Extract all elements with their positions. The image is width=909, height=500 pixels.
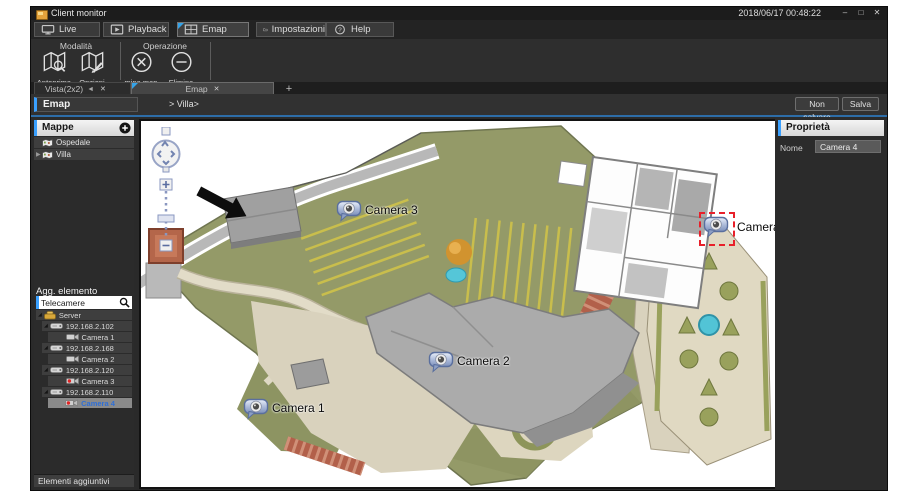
map-camera-4[interactable] [703,216,729,238]
emap-panel-title: Emap [34,97,138,112]
search-box [36,296,132,309]
maximize-button[interactable]: □ [853,7,869,19]
expander-icon[interactable]: ◢ [44,367,48,373]
tab-impostazioni[interactable]: Impostazioni [256,22,326,37]
properties-panel: Proprietà Nome Camera 4 [775,117,887,490]
map-item-ospedale[interactable]: Ospedale [34,137,134,148]
clock: 2018/06/17 00:48:22 [738,8,821,18]
map-camera-3[interactable] [336,200,362,222]
group-title: Modalità [34,39,118,51]
tab-label: Playback [128,24,167,35]
close-icon[interactable]: ✕ [214,85,220,93]
window-title: Client monitor [51,8,107,18]
map-camera-3-label: Camera 3 [365,203,418,217]
map-camera-1[interactable] [243,398,269,420]
maps-header-label: Mappe [42,122,74,133]
map-camera-2-label: Camera 2 [457,354,510,368]
maps-header: Mappe [34,120,134,136]
sidebar: Mappe Ospedale ▶ Villa Agg. elemento ◢ S… [34,117,134,490]
device-icon [50,389,63,395]
map-camera-4-label: Camera 4 [737,220,777,234]
tree-item-server[interactable]: ◢ Server [36,310,132,320]
tab-playback[interactable]: Playback [103,22,169,37]
search-input[interactable] [41,296,119,309]
tree-item-device[interactable]: ◢ 192.168.2.168 [42,343,132,353]
subtab-label: Emap [185,84,207,94]
tree-label: 192.168.2.102 [66,322,114,331]
tree-label: 192.168.2.168 [66,344,114,353]
tab-help[interactable]: Help [326,22,394,37]
close-button[interactable]: ✕ [869,7,885,19]
breadcrumb: > Villa> [169,99,199,109]
minimize-button[interactable]: – [837,7,853,19]
playback-icon [110,24,124,35]
tab-label: Impostazioni [272,24,325,35]
main-tab-bar: Live Playback Emap Impostazioni Help [31,20,887,39]
close-icon[interactable]: ✕ [100,85,106,93]
app-window: Client monitor 2018/06/17 00:48:22 – □ ✕… [30,6,888,491]
properties-header: Proprietà [778,120,884,136]
emap-header: Emap > Villa> Non salvare Salva [31,94,887,117]
tab-label: Live [59,24,76,35]
app-icon [36,10,48,20]
tree-label: Camera 1 [82,333,115,342]
help-icon [333,24,347,35]
tab-label: Emap [202,24,227,35]
name-label: Nome [780,143,803,153]
map-preview-icon [42,51,67,73]
device-icon [50,323,63,329]
add-map-icon[interactable] [119,122,131,134]
camera-marker-icon [428,351,454,373]
tree-label: Camera 3 [82,377,115,386]
tree-item-camera[interactable]: Camera 2 [48,354,132,364]
device-icon [50,345,63,351]
group-title: Operazione [121,39,209,51]
expander-icon[interactable]: ◢ [44,389,48,395]
map-edit-icon [80,51,105,73]
tree-item-camera[interactable]: Camera 1 [48,332,132,342]
map-item-label: Ospedale [56,138,90,147]
tree-label: Camera 2 [82,355,115,364]
camera-recording-icon [65,399,78,407]
subtab-label: Vista(2x2) [45,84,83,94]
delete-icon [169,51,194,73]
device-icon [50,367,63,373]
map-canvas[interactable]: Camera 3 Camera 4 Camera 2 Camera 1 [139,119,777,489]
map-pan-zoom-control[interactable] [149,127,185,267]
additional-elements-bar[interactable]: Elementi aggiuntivi [34,474,134,487]
detach-icon[interactable]: ◄ [87,86,94,93]
search-icon[interactable] [119,297,130,308]
camera-marker-icon [336,200,362,222]
ribbon-toolbar: Modalità Anteprima Opzioni Operazione El… [31,39,887,83]
map-item-label: Villa [56,150,71,159]
non-salvare-button[interactable]: Non salvare [795,97,839,111]
tree-label: Server [59,311,81,320]
name-field[interactable]: Camera 4 [815,140,881,153]
salva-button[interactable]: Salva [842,97,879,111]
map-camera-1-label: Camera 1 [272,401,325,415]
tree-label: Camera 4 [81,399,115,408]
tree-item-device[interactable]: ◢ 192.168.2.120 [42,365,132,375]
camera-icon [66,355,79,363]
camera-marker-icon [703,216,729,238]
tree-item-camera-selected[interactable]: Camera 4 [48,398,132,408]
tab-emap[interactable]: Emap [177,22,249,37]
tree-label: 192.168.2.110 [66,388,113,397]
tab-live[interactable]: Live [34,22,100,37]
map-item-villa[interactable]: ▶ Villa [34,149,134,160]
camera-recording-icon [66,377,79,385]
emap-icon [184,24,198,35]
tree-item-camera[interactable]: Camera 3 [48,376,132,386]
delete-map-icon [129,51,154,73]
map-icon [42,139,53,147]
expander-icon[interactable]: ◢ [38,312,42,318]
monitor-icon [41,24,55,35]
tree-item-device[interactable]: ◢ 192.168.2.110 [42,387,132,397]
tree-label: 192.168.2.120 [66,366,114,375]
tab-label: Help [351,24,371,35]
camera-tree: ◢ Server ◢ 192.168.2.102 Camera 1 ◢ 192.… [34,310,134,409]
map-illustration [141,121,775,487]
server-icon [44,311,56,320]
expander-icon[interactable]: ◢ [44,345,48,351]
titlebar: Client monitor 2018/06/17 00:48:22 – □ ✕ [31,7,887,20]
map-camera-2[interactable] [428,351,454,373]
expander-icon[interactable]: ◢ [44,323,48,329]
tree-item-device[interactable]: ◢ 192.168.2.102 [42,321,132,331]
settings-icon [263,24,268,35]
camera-icon [66,333,79,341]
ribbon-separator [210,42,211,80]
map-icon [42,151,53,159]
camera-marker-icon [243,398,269,420]
